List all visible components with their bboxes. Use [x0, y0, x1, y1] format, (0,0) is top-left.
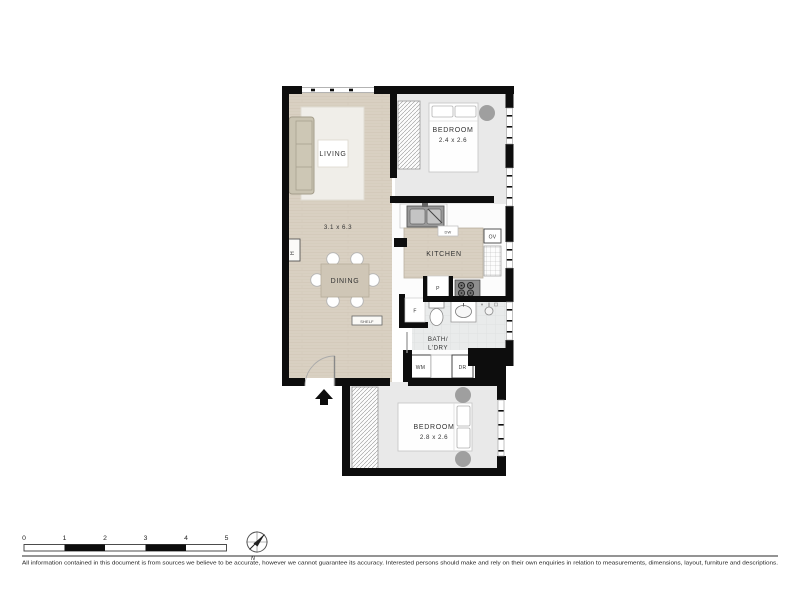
bedroom-top-label: BEDROOM — [432, 127, 473, 134]
pillow — [432, 106, 453, 117]
washing-machine-label: WM — [416, 365, 425, 371]
shelf-label: SHELF — [360, 319, 374, 324]
dishwasher-label: DW — [445, 230, 452, 235]
dryer-label: DR — [459, 365, 467, 371]
bath-label-line2: L'DRY — [428, 345, 448, 352]
dining-chair — [327, 253, 340, 266]
pillow — [455, 106, 476, 117]
entry-arrow-icon — [315, 389, 333, 405]
disclaimer-text: All information contained in this docume… — [22, 561, 778, 567]
scale-tick-5: 5 — [225, 535, 229, 542]
scale-tick-4: 4 — [184, 535, 188, 542]
bedroom-bottom-dimensions: 2.8 x 2.6 — [420, 434, 448, 441]
cooktop — [455, 280, 480, 297]
living-dimensions: 3.1 x 6.3 — [324, 224, 352, 231]
living-label: LIVING — [319, 151, 346, 158]
scale-tick-2: 2 — [103, 535, 107, 542]
floor-plan-canvas: LIVING 3.1 x 6.3 DINING SHELF H — [0, 0, 800, 600]
toilet-icon — [429, 301, 444, 326]
dishwasher: DW — [438, 226, 458, 236]
compass-needle-head — [254, 535, 265, 547]
scale-tick-3: 3 — [144, 535, 148, 542]
pantry-label: P — [436, 286, 440, 292]
pillow — [457, 428, 470, 448]
scale-bar-segment — [65, 545, 106, 552]
side-table — [455, 451, 471, 467]
scale-bar-segment — [146, 545, 187, 552]
basin-icon — [451, 301, 476, 322]
scale-bar-track — [24, 545, 227, 552]
sofa — [289, 117, 314, 194]
oven: OV — [484, 229, 501, 243]
side-table — [479, 105, 495, 121]
compass: N — [246, 531, 268, 562]
laundry-bench — [431, 355, 452, 378]
pantry-shelving — [484, 246, 501, 276]
kitchen-label: KITCHEN — [426, 251, 462, 258]
hot-water-label: H — [290, 251, 296, 255]
bedroom-bottom-label: BEDROOM — [413, 424, 454, 431]
bedroom-top-dimensions: 2.4 x 2.6 — [439, 137, 467, 144]
oven-label: OV — [489, 235, 497, 241]
shelf-unit: SHELF — [352, 316, 382, 325]
scale-tick-1: 1 — [63, 535, 67, 542]
washing-machine: WM — [410, 355, 431, 378]
scale-tick-0: 0 — [22, 535, 26, 542]
dining-chair — [351, 253, 364, 266]
pillow — [457, 406, 470, 426]
fridge-label: F — [413, 309, 416, 315]
bath-label-line1: BATH/ — [428, 336, 448, 343]
entry-opening — [305, 378, 335, 387]
living-window — [302, 87, 374, 93]
dining-label: DINING — [331, 278, 360, 285]
footer: All information contained in this docume… — [22, 556, 778, 567]
tap — [422, 203, 428, 207]
wardrobe — [352, 387, 378, 471]
side-table — [455, 387, 471, 403]
scale-bar: 0 1 2 3 4 5 — [22, 535, 229, 551]
wardrobe — [398, 101, 420, 169]
sink — [407, 203, 444, 227]
